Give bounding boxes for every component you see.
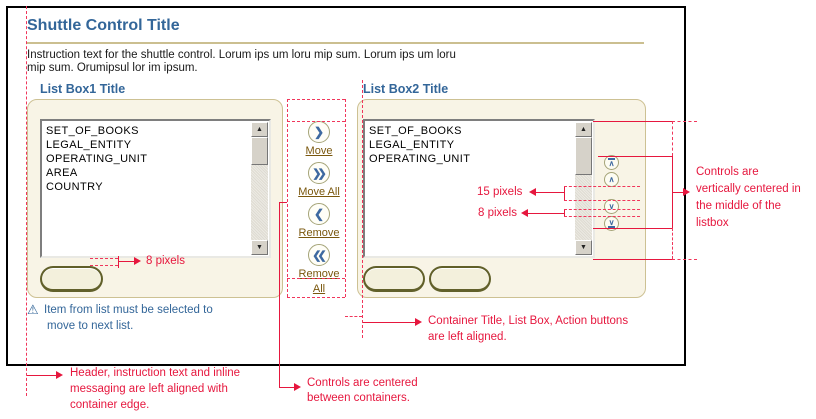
controls-bracket-line	[287, 121, 345, 122]
bracket-line	[593, 121, 672, 122]
scroll-up-button[interactable]: ▲	[575, 122, 592, 137]
move-to-top-button[interactable]: ∧	[604, 155, 619, 170]
bracket-line	[593, 228, 672, 229]
callout-line	[363, 322, 417, 323]
move-link[interactable]: Move	[289, 144, 349, 159]
scroll-up-icon: ▲	[580, 126, 587, 133]
measure-line	[564, 186, 565, 201]
measure-line	[534, 192, 564, 193]
measure-8px-right-label: 8 pixels	[478, 207, 517, 219]
instruction-text-line1: Instruction text for the shuttle control…	[27, 49, 456, 61]
remove-all-link[interactable]: Remove All	[293, 267, 345, 297]
callout-line	[279, 202, 287, 203]
controls-bracket-line	[287, 297, 345, 298]
list-item[interactable]: AREA	[46, 166, 246, 180]
container-aligned-note-line2: are left aligned.	[428, 331, 507, 343]
scroll-down-icon: ▼	[256, 244, 263, 251]
remove-all-button-icon[interactable]: ❮❮	[308, 244, 330, 266]
shuttle-control-spec: Shuttle Control Title Instruction text f…	[0, 0, 816, 419]
bracket-line	[672, 121, 673, 156]
scroll-down-icon: ▼	[580, 244, 587, 251]
header-aligned-note-line1: Header, instruction text and inline	[70, 367, 240, 379]
controls-bracket-line	[287, 278, 345, 279]
listbox2-action-button-2[interactable]	[429, 266, 491, 292]
callout-line	[345, 316, 362, 317]
warning-text-line2: move to next list.	[47, 320, 133, 332]
page-title: Shuttle Control Title	[27, 17, 180, 35]
measure-line	[564, 200, 640, 201]
measure-line	[564, 186, 640, 187]
bracket-line	[598, 156, 672, 157]
controls-centered-note-line2: between containers.	[307, 392, 410, 404]
list-item[interactable]: SET_OF_BOOKS	[369, 124, 570, 138]
arrow-right-icon	[134, 257, 141, 265]
arrow-right-icon	[415, 318, 422, 326]
chevron-up-bar-icon: ∧	[609, 157, 615, 168]
double-chevron-right-icon: ❯❯	[315, 167, 322, 180]
title-rule	[27, 42, 644, 44]
controls-bracket-line	[345, 99, 346, 297]
callout-line	[279, 202, 280, 387]
remove-button-icon[interactable]: ❮	[308, 203, 330, 225]
listbox2-title: List Box2 Title	[363, 82, 448, 96]
bracket-line	[672, 259, 697, 260]
chevron-right-icon: ❯	[314, 125, 324, 139]
measure-15px-label: 15 pixels	[477, 186, 522, 198]
chevron-left-icon: ❮	[314, 207, 324, 221]
bracket-line	[672, 228, 673, 259]
warning-text-line1: Item from list must be selected to	[44, 304, 213, 316]
remove-link[interactable]: Remove	[289, 226, 349, 241]
bracket-line	[593, 259, 672, 260]
bracket-line	[672, 121, 697, 122]
listbox1-items: SET_OF_BOOKS LEGAL_ENTITY OPERATING_UNIT…	[42, 121, 250, 256]
controls-bracket-line	[287, 99, 288, 297]
list-item[interactable]: SET_OF_BOOKS	[46, 124, 246, 138]
list-item[interactable]: LEGAL_ENTITY	[369, 138, 570, 152]
list-item[interactable]: OPERATING_UNIT	[369, 152, 570, 166]
header-aligned-note-line3: container edge.	[70, 399, 149, 411]
measure-line	[118, 256, 119, 268]
scrollbar-thumb[interactable]	[251, 137, 268, 165]
listbox1-title: List Box1 Title	[40, 82, 125, 96]
measure-8px-left-label: 8 pixels	[146, 255, 185, 267]
controls-bracket-line	[287, 99, 345, 100]
listbox2-scrollbar[interactable]: ▲ ▼	[575, 122, 592, 255]
controls-centered-note-line1: Controls are centered	[307, 377, 418, 389]
scroll-up-icon: ▲	[256, 126, 263, 133]
vertical-center-note-line3: the middle of the	[696, 200, 781, 212]
list-item[interactable]: LEGAL_ENTITY	[46, 138, 246, 152]
move-all-button-icon[interactable]: ❯❯	[308, 162, 330, 184]
move-all-link[interactable]: Move All	[285, 185, 353, 200]
instruction-text-line2: mip sum. Orumipsul lor im ipsum.	[27, 62, 198, 74]
listbox1-action-button[interactable]	[40, 266, 103, 292]
move-down-button[interactable]: ∨	[604, 199, 619, 214]
measure-line	[90, 265, 118, 266]
measure-line	[90, 258, 118, 259]
scroll-down-button[interactable]: ▼	[251, 240, 268, 255]
scrollbar-thumb[interactable]	[575, 137, 592, 175]
listbox1[interactable]: SET_OF_BOOKS LEGAL_ENTITY OPERATING_UNIT…	[40, 119, 271, 258]
container-aligned-note-line1: Container Title, List Box, Action button…	[428, 315, 628, 327]
callout-line	[27, 375, 58, 376]
chevron-up-icon: ∧	[609, 175, 615, 184]
header-aligned-note-line2: messaging are left aligned with	[70, 383, 228, 395]
listbox1-scrollbar[interactable]: ▲ ▼	[251, 122, 268, 255]
measure-line	[564, 216, 640, 217]
measure-line	[564, 209, 640, 210]
listbox2-action-button-1[interactable]	[363, 266, 425, 292]
vertical-center-note-line4: listbox	[696, 217, 729, 229]
list-item[interactable]: COUNTRY	[46, 180, 246, 194]
double-chevron-left-icon: ❮❮	[315, 249, 322, 262]
measure-line	[526, 213, 564, 214]
arrow-right-icon	[294, 383, 301, 391]
scroll-up-button[interactable]: ▲	[251, 122, 268, 137]
arrow-right-icon	[683, 188, 690, 196]
move-button-icon[interactable]: ❯	[308, 121, 330, 143]
list-item[interactable]: OPERATING_UNIT	[46, 152, 246, 166]
listbox2-items: SET_OF_BOOKS LEGAL_ENTITY OPERATING_UNIT	[365, 121, 574, 256]
move-up-button[interactable]: ∧	[604, 172, 619, 187]
scroll-down-button[interactable]: ▼	[575, 240, 592, 255]
vertical-center-note-line1: Controls are	[696, 166, 759, 178]
container2-align-guide-line	[362, 80, 363, 338]
arrow-right-icon	[56, 371, 63, 379]
vertical-center-note-line2: vertically centered in	[696, 183, 801, 195]
warning-icon: ⚠	[27, 303, 39, 316]
